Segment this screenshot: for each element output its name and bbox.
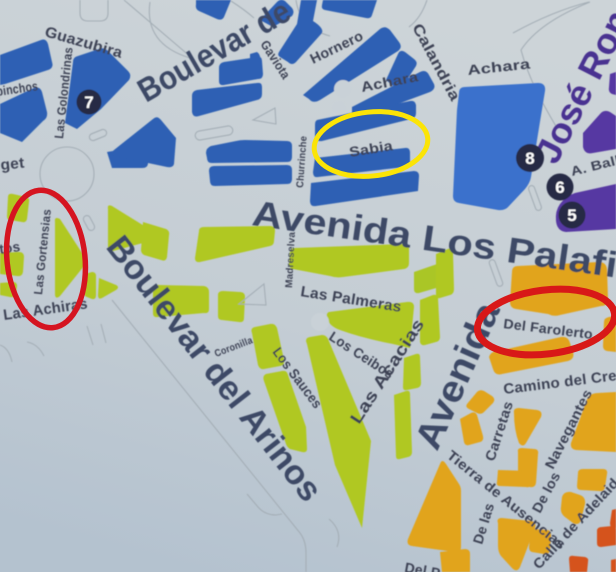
svg-text:get: get <box>0 155 25 174</box>
svg-text:tos: tos <box>0 238 21 257</box>
svg-text:5: 5 <box>567 206 576 225</box>
svg-text:6: 6 <box>555 178 564 197</box>
svg-text:8: 8 <box>525 149 534 168</box>
svg-text:7: 7 <box>84 93 93 112</box>
